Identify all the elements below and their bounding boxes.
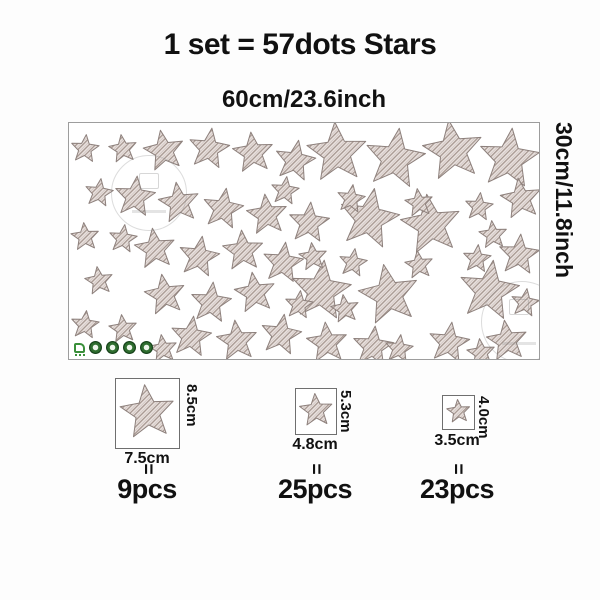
decal-sheet bbox=[68, 122, 540, 360]
page-title: 1 set = 57dots Stars bbox=[0, 28, 600, 62]
star-decal-medium bbox=[430, 322, 470, 359]
star-decal-small bbox=[85, 267, 112, 294]
star-decal-medium bbox=[290, 202, 330, 241]
star-decal-medium bbox=[144, 274, 183, 313]
star-decal-small bbox=[109, 135, 136, 162]
spec-count-large: 9pcs bbox=[101, 474, 193, 505]
certification-badge-icon bbox=[123, 341, 136, 354]
star-decal-large bbox=[481, 128, 539, 186]
star-decal-small bbox=[109, 315, 136, 342]
star-decal-small bbox=[386, 335, 413, 359]
spec-group-large: 8.5cm 7.5cm = 9pcs bbox=[95, 376, 205, 516]
spec-star-small bbox=[447, 400, 470, 422]
star-decal-small bbox=[331, 295, 358, 322]
star-decal-medium bbox=[134, 228, 174, 267]
star-decal-large bbox=[367, 128, 425, 186]
star-decal-small bbox=[110, 225, 137, 252]
star-decal-large bbox=[307, 123, 366, 179]
star-decal-small bbox=[464, 245, 491, 272]
star-decal-medium bbox=[486, 320, 526, 359]
product-image: 1 set = 57dots Stars 60cm/23.6inch 30cm/… bbox=[0, 0, 600, 600]
star-decal-small bbox=[72, 135, 99, 162]
star-decal-medium bbox=[116, 176, 156, 215]
star-decal-medium bbox=[247, 194, 287, 233]
star-decal-small bbox=[340, 249, 367, 276]
spec-group-small: 4.0cm 3.5cm = 23pcs bbox=[405, 392, 515, 516]
spec-star-medium bbox=[300, 394, 332, 425]
star-decal-small bbox=[405, 251, 432, 278]
sheet-stars-svg bbox=[69, 123, 539, 359]
star-decal-small bbox=[72, 311, 99, 338]
star-decal-medium bbox=[307, 322, 347, 359]
star-decal-medium bbox=[217, 320, 257, 359]
certification-badge-icon bbox=[140, 341, 153, 354]
star-decal-small bbox=[466, 193, 493, 220]
star-decal-medium bbox=[192, 282, 232, 321]
star-decal-medium bbox=[234, 272, 274, 311]
star-decal-medium bbox=[233, 132, 273, 171]
eco-leaf-icon bbox=[74, 343, 85, 353]
star-decal-small bbox=[272, 177, 299, 204]
sheet-height-label: 30cm/11.8inch bbox=[550, 122, 577, 360]
certification-badge-icon bbox=[89, 341, 102, 354]
star-decal-small bbox=[479, 221, 506, 248]
spec-count-medium: 25pcs bbox=[269, 474, 361, 505]
star-decal-medium bbox=[500, 178, 539, 217]
star-decal-medium bbox=[223, 230, 263, 269]
star-decal-medium bbox=[180, 236, 219, 275]
star-decal-medium bbox=[264, 242, 304, 281]
star-decal-medium bbox=[204, 188, 243, 227]
star-decal-large bbox=[423, 123, 481, 178]
star-decal-medium bbox=[158, 182, 198, 221]
sheet-width-label: 60cm/23.6inch bbox=[68, 86, 540, 114]
spec-count-small: 23pcs bbox=[411, 474, 503, 505]
star-decal-medium bbox=[143, 130, 182, 170]
star-decal-medium bbox=[500, 234, 539, 273]
star-decal-medium bbox=[262, 314, 301, 353]
spec-height-label-large: 8.5cm bbox=[183, 384, 200, 427]
star-decal-small bbox=[299, 243, 326, 270]
star-decal-small bbox=[512, 289, 539, 316]
star-decal-small bbox=[71, 223, 98, 250]
star-decal-small bbox=[86, 179, 113, 206]
certification-badge-icon bbox=[106, 341, 119, 354]
star-decal-medium bbox=[190, 128, 230, 167]
star-decal-small bbox=[467, 339, 494, 359]
star-decal-large bbox=[358, 265, 416, 323]
spec-group-medium: 5.3cm 4.8cm = 25pcs bbox=[265, 386, 375, 516]
star-decal-medium bbox=[172, 316, 212, 355]
spec-height-label-medium: 5.3cm bbox=[337, 390, 354, 433]
certification-icons bbox=[74, 341, 153, 354]
